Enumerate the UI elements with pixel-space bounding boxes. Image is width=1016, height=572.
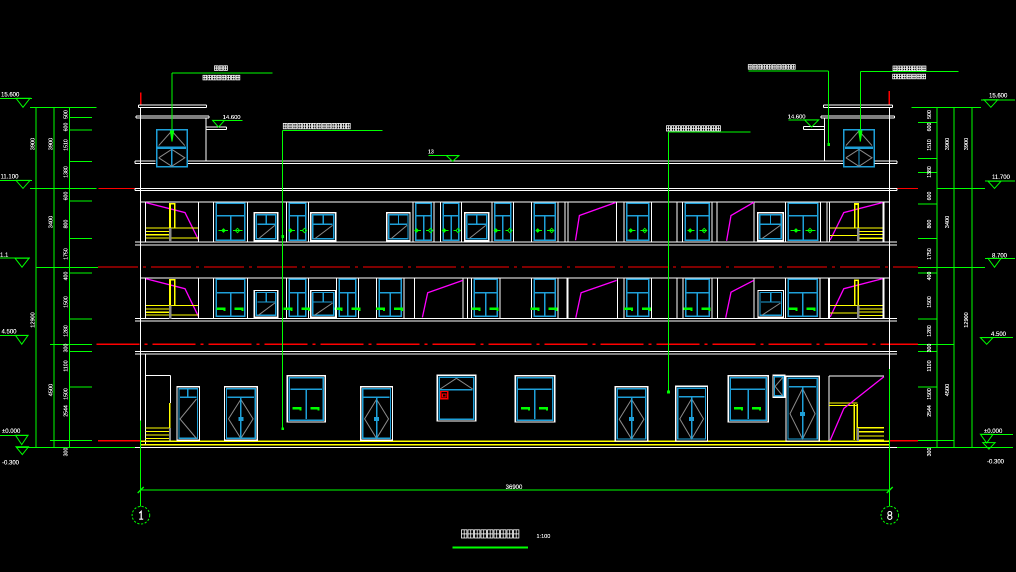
svg-text:600: 600 — [64, 192, 70, 201]
svg-text:4500: 4500 — [945, 384, 951, 396]
svg-text:1:100: 1:100 — [537, 534, 551, 540]
svg-text:500: 500 — [927, 110, 933, 119]
svg-text:2544: 2544 — [64, 405, 70, 417]
svg-text:600: 600 — [927, 192, 933, 201]
svg-text:300: 300 — [64, 344, 70, 353]
svg-text:1510: 1510 — [64, 139, 70, 151]
svg-text:4500: 4500 — [48, 384, 54, 396]
svg-text:2544: 2544 — [927, 405, 933, 417]
svg-text:600: 600 — [927, 123, 933, 132]
svg-text:400: 400 — [927, 272, 933, 281]
svg-text:13: 13 — [428, 149, 434, 155]
svg-text:3400: 3400 — [48, 216, 54, 228]
svg-text:12900: 12900 — [30, 312, 36, 328]
svg-text:36900: 36900 — [506, 485, 523, 491]
svg-text:3900: 3900 — [30, 138, 36, 150]
svg-text:15.600: 15.600 — [989, 94, 1008, 100]
svg-text:1280: 1280 — [64, 325, 70, 337]
svg-text:1500: 1500 — [927, 296, 933, 308]
svg-text:3400: 3400 — [945, 216, 951, 228]
svg-text:-0.300: -0.300 — [987, 459, 1005, 465]
svg-text:800: 800 — [64, 220, 70, 229]
svg-text:12900: 12900 — [964, 312, 970, 328]
svg-text:1500: 1500 — [927, 388, 933, 400]
svg-text:3900: 3900 — [945, 138, 951, 150]
svg-text:11.100: 11.100 — [1, 175, 20, 181]
svg-text:600: 600 — [64, 123, 70, 132]
svg-text:1100: 1100 — [64, 360, 70, 371]
svg-text:1380: 1380 — [64, 166, 70, 178]
svg-text:500: 500 — [64, 110, 70, 119]
svg-text:400: 400 — [64, 272, 70, 281]
svg-text:3900: 3900 — [48, 138, 54, 150]
svg-text:11.700: 11.700 — [992, 175, 1011, 181]
svg-text:1750: 1750 — [64, 248, 70, 260]
svg-text:1510: 1510 — [927, 139, 933, 151]
svg-text:±0.000: ±0.000 — [2, 429, 21, 435]
svg-text:-0.300: -0.300 — [2, 461, 20, 467]
svg-text:1280: 1280 — [927, 325, 933, 337]
svg-text:15.600: 15.600 — [1, 93, 20, 99]
svg-text:4.500: 4.500 — [2, 330, 18, 336]
svg-text:300: 300 — [64, 448, 70, 457]
svg-text:300: 300 — [927, 344, 933, 353]
svg-text:3900: 3900 — [964, 138, 970, 150]
svg-text:1100: 1100 — [927, 360, 933, 371]
svg-text:1500: 1500 — [64, 388, 70, 400]
svg-text:300: 300 — [927, 448, 933, 457]
svg-text:1380: 1380 — [927, 166, 933, 178]
svg-text:800: 800 — [927, 220, 933, 229]
svg-text:1500: 1500 — [64, 296, 70, 308]
svg-text:1750: 1750 — [927, 248, 933, 260]
